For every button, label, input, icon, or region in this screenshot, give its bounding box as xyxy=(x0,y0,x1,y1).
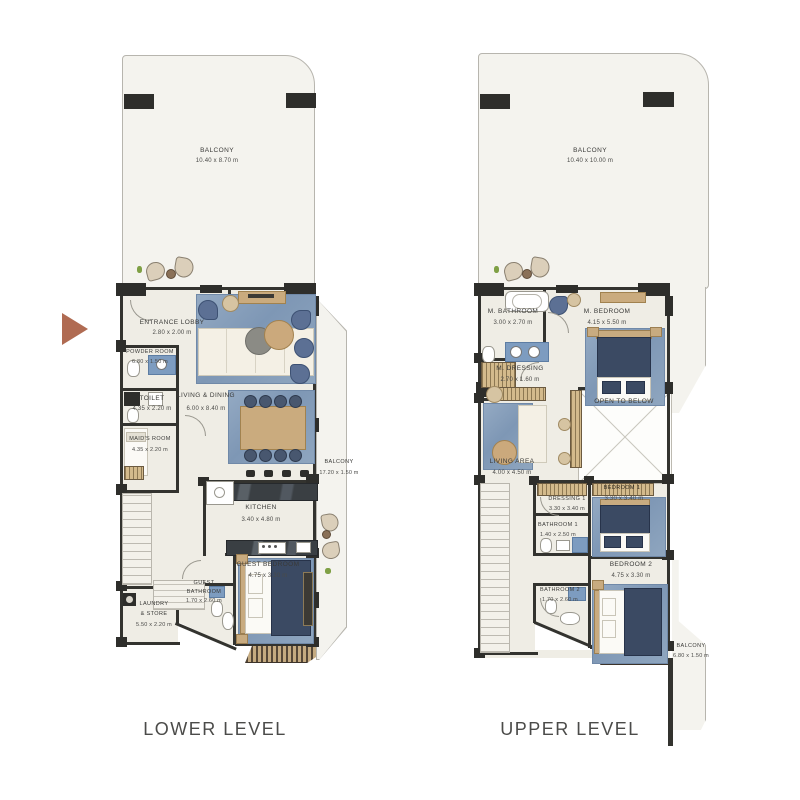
wall xyxy=(535,553,590,556)
room-label-dressing1: DRESSING 1 xyxy=(548,496,585,502)
column xyxy=(662,474,674,484)
room-label-open-to-below: OPEN TO BELOW xyxy=(594,398,654,405)
column xyxy=(664,382,673,394)
wardrobe xyxy=(537,483,587,496)
deck-strip xyxy=(245,645,318,663)
stairs xyxy=(122,493,152,585)
lower-level-title: LOWER LEVEL xyxy=(143,719,287,740)
dining-chair xyxy=(289,395,302,408)
pouf xyxy=(222,295,239,312)
room-dim-bathroom1: 1.40 x 2.50 m xyxy=(540,532,576,538)
coffee-table xyxy=(264,320,294,350)
toilet xyxy=(482,346,495,363)
room-label-living-area: LIVING AREA xyxy=(490,458,535,465)
wardrobe xyxy=(124,466,144,480)
wall xyxy=(535,583,590,586)
room-label-maids-room: MAID'S ROOM xyxy=(129,436,171,442)
hob-burner xyxy=(268,545,271,548)
fridge-detail xyxy=(214,487,225,498)
lower-balcony-side-dim: 17.20 x 1.50 m xyxy=(319,470,358,476)
bed-blanket xyxy=(624,588,662,656)
entrance-arrow-icon xyxy=(62,313,88,345)
bar-stool xyxy=(300,470,309,477)
room-dim-bathroom2: 1.70 x 2.60 m xyxy=(542,597,578,603)
room-label-guest-bedroom: GUEST BEDROOM xyxy=(237,561,300,568)
lower-balcony-side-label: BALCONY xyxy=(324,459,353,465)
column xyxy=(286,93,316,108)
room-dim-powder-room: 6.80 x 1.50 m xyxy=(132,359,168,365)
room-dim-dressing1: 3.30 x 3.40 m xyxy=(549,506,585,512)
bed-pillow xyxy=(602,620,616,638)
bed-pillow xyxy=(604,536,621,548)
stairs xyxy=(480,483,510,653)
plant-icon xyxy=(325,568,331,574)
wall xyxy=(233,553,236,645)
nightstand xyxy=(650,327,662,337)
wall xyxy=(120,423,178,426)
toilet xyxy=(540,538,552,553)
dining-chair xyxy=(259,395,272,408)
pouf xyxy=(486,386,503,403)
lower-balcony-side xyxy=(317,299,346,659)
sink xyxy=(556,540,570,551)
room-dim-entrance-lobby: 2.80 x 2.00 m xyxy=(153,330,192,336)
bathtub-inner xyxy=(512,294,542,309)
dining-chair xyxy=(259,449,272,462)
room-dim-kitchen: 3.40 x 4.80 m xyxy=(242,517,281,523)
upper-balcony-side-dim: 6.80 x 1.50 m xyxy=(673,653,709,659)
room-dim-bedroom1: 3.30 x 3.40 m xyxy=(605,496,644,502)
bed-pillow xyxy=(626,536,643,548)
armchair xyxy=(291,310,311,330)
room-dim-m-dressing: 2.70 x 1.60 m xyxy=(501,377,540,383)
column xyxy=(474,283,504,296)
armchair xyxy=(290,364,310,384)
pouf xyxy=(558,418,571,431)
column xyxy=(116,340,126,352)
sofa-seam xyxy=(226,329,227,373)
hob xyxy=(258,542,286,554)
wall xyxy=(533,583,536,623)
room-dim-living-dining: 6.00 x 8.40 m xyxy=(187,406,226,412)
sink xyxy=(528,346,540,358)
bar-stool xyxy=(246,470,255,477)
balcony-wall xyxy=(668,658,673,746)
column xyxy=(124,94,154,109)
bar-stool xyxy=(282,470,291,477)
room-label-m-dressing: M. DRESSING xyxy=(496,365,543,372)
plant-icon xyxy=(494,266,499,273)
column xyxy=(116,283,146,296)
bar-stool xyxy=(264,470,273,477)
bed-pillow xyxy=(248,598,263,618)
room-label-bathroom2: BATHROOM 2 xyxy=(540,587,580,593)
wall xyxy=(535,513,590,516)
washer-door xyxy=(126,596,133,603)
nightstand xyxy=(592,580,604,590)
bathtub xyxy=(560,612,580,625)
nightstand xyxy=(236,634,248,644)
upper-balcony-top-label: BALCONY xyxy=(573,147,607,154)
dining-chair xyxy=(289,449,302,462)
room-label-laundry-2: & STORE xyxy=(141,611,168,617)
wall xyxy=(176,345,179,493)
lower-balcony-top-label: BALCONY xyxy=(200,147,234,154)
sink xyxy=(296,542,311,553)
bed-blanket xyxy=(597,337,651,379)
dining-chair xyxy=(244,449,257,462)
wall xyxy=(120,388,178,391)
room-label-bedroom2: BEDROOM 2 xyxy=(610,561,653,568)
room-label-powder-room: POWDER ROOM xyxy=(126,349,174,355)
upper-balcony-top xyxy=(478,53,709,289)
room-label-guest-bathroom-1: GUEST xyxy=(194,580,215,586)
wall xyxy=(588,480,591,648)
room-dim-toilet: 4.35 x 2.20 m xyxy=(133,406,172,412)
upper-terrace-wrap xyxy=(670,287,706,413)
shower xyxy=(572,537,588,553)
bed-pillow xyxy=(602,598,616,616)
sofa xyxy=(518,405,547,463)
room-dim-laundry: 5.50 x 2.20 m xyxy=(136,622,172,628)
hob-burner xyxy=(262,545,265,548)
upper-balcony-top-dim: 10.40 x 10.00 m xyxy=(567,158,613,164)
outdoor-table-icon xyxy=(166,269,176,279)
bed-pillow xyxy=(626,381,645,394)
column xyxy=(665,296,673,316)
floorplan-sheet: BALCONY 10.40 x 8.70 m BALCONY 17.20 x 1… xyxy=(0,0,800,800)
nightstand xyxy=(587,327,599,337)
room-label-laundry-1: LAUNDRY xyxy=(140,601,169,607)
room-label-m-bedroom: M. BEDROOM xyxy=(584,308,631,315)
room-label-bathroom1: BATHROOM 1 xyxy=(538,522,578,528)
room-label-bedroom1: BEDROOM 1 xyxy=(604,485,641,491)
room-label-entrance-lobby: ENTRANCE LOBBY xyxy=(140,319,205,326)
bed-pillow xyxy=(602,381,621,394)
column xyxy=(200,285,222,293)
shower xyxy=(124,392,140,406)
dining-chair xyxy=(274,449,287,462)
room-label-m-bathroom: M. BATHROOM xyxy=(488,308,539,315)
column xyxy=(116,637,127,647)
pouf xyxy=(558,452,571,465)
armchair xyxy=(198,300,218,320)
wall xyxy=(120,345,178,348)
bed-blanket xyxy=(600,505,650,535)
room-dim-guest-bathroom: 1.70 x 2.60 m xyxy=(186,598,222,604)
room-dim-m-bedroom: 4.15 x 5.50 m xyxy=(588,320,627,326)
sink xyxy=(510,346,522,358)
room-dim-bedroom2: 4.75 x 3.30 m xyxy=(612,573,651,579)
room-label-toilet: TOILET xyxy=(139,395,164,402)
plant-icon xyxy=(137,266,142,273)
upper-level-title: UPPER LEVEL xyxy=(500,719,640,740)
console-table xyxy=(600,292,646,303)
pouf xyxy=(567,293,581,307)
upper-balcony-side-label: BALCONY xyxy=(676,643,705,649)
outdoor-table-icon xyxy=(522,269,532,279)
armchair xyxy=(294,338,314,358)
wardrobe xyxy=(570,390,582,468)
room-dim-m-bathroom: 3.00 x 2.70 m xyxy=(494,320,533,326)
wardrobe xyxy=(498,387,546,401)
bathtub xyxy=(222,612,234,630)
column xyxy=(556,285,578,293)
lower-balcony-top xyxy=(122,55,315,289)
room-label-guest-bathroom-2: BATHROOM xyxy=(187,589,222,595)
room-dim-guest-bedroom: 4.75 x 3.30 m xyxy=(249,573,288,579)
column xyxy=(480,94,510,109)
room-label-living-dining: LIVING & DINING xyxy=(177,392,235,399)
room-label-kitchen: KITCHEN xyxy=(245,504,276,511)
column xyxy=(643,92,674,107)
room-dim-maids-room: 4.35 x 2.20 m xyxy=(132,447,168,453)
wardrobe xyxy=(303,572,313,626)
lower-balcony-top-dim: 10.40 x 8.70 m xyxy=(196,158,239,164)
dining-chair xyxy=(244,395,257,408)
room-dim-living-area: 4.00 x 4.50 m xyxy=(493,470,532,476)
console-detail xyxy=(248,294,274,298)
wall xyxy=(120,642,180,645)
outdoor-table-icon xyxy=(322,530,331,539)
dining-table xyxy=(240,406,306,450)
dining-chair xyxy=(274,395,287,408)
wall xyxy=(533,480,536,556)
hob-burner xyxy=(274,545,277,548)
